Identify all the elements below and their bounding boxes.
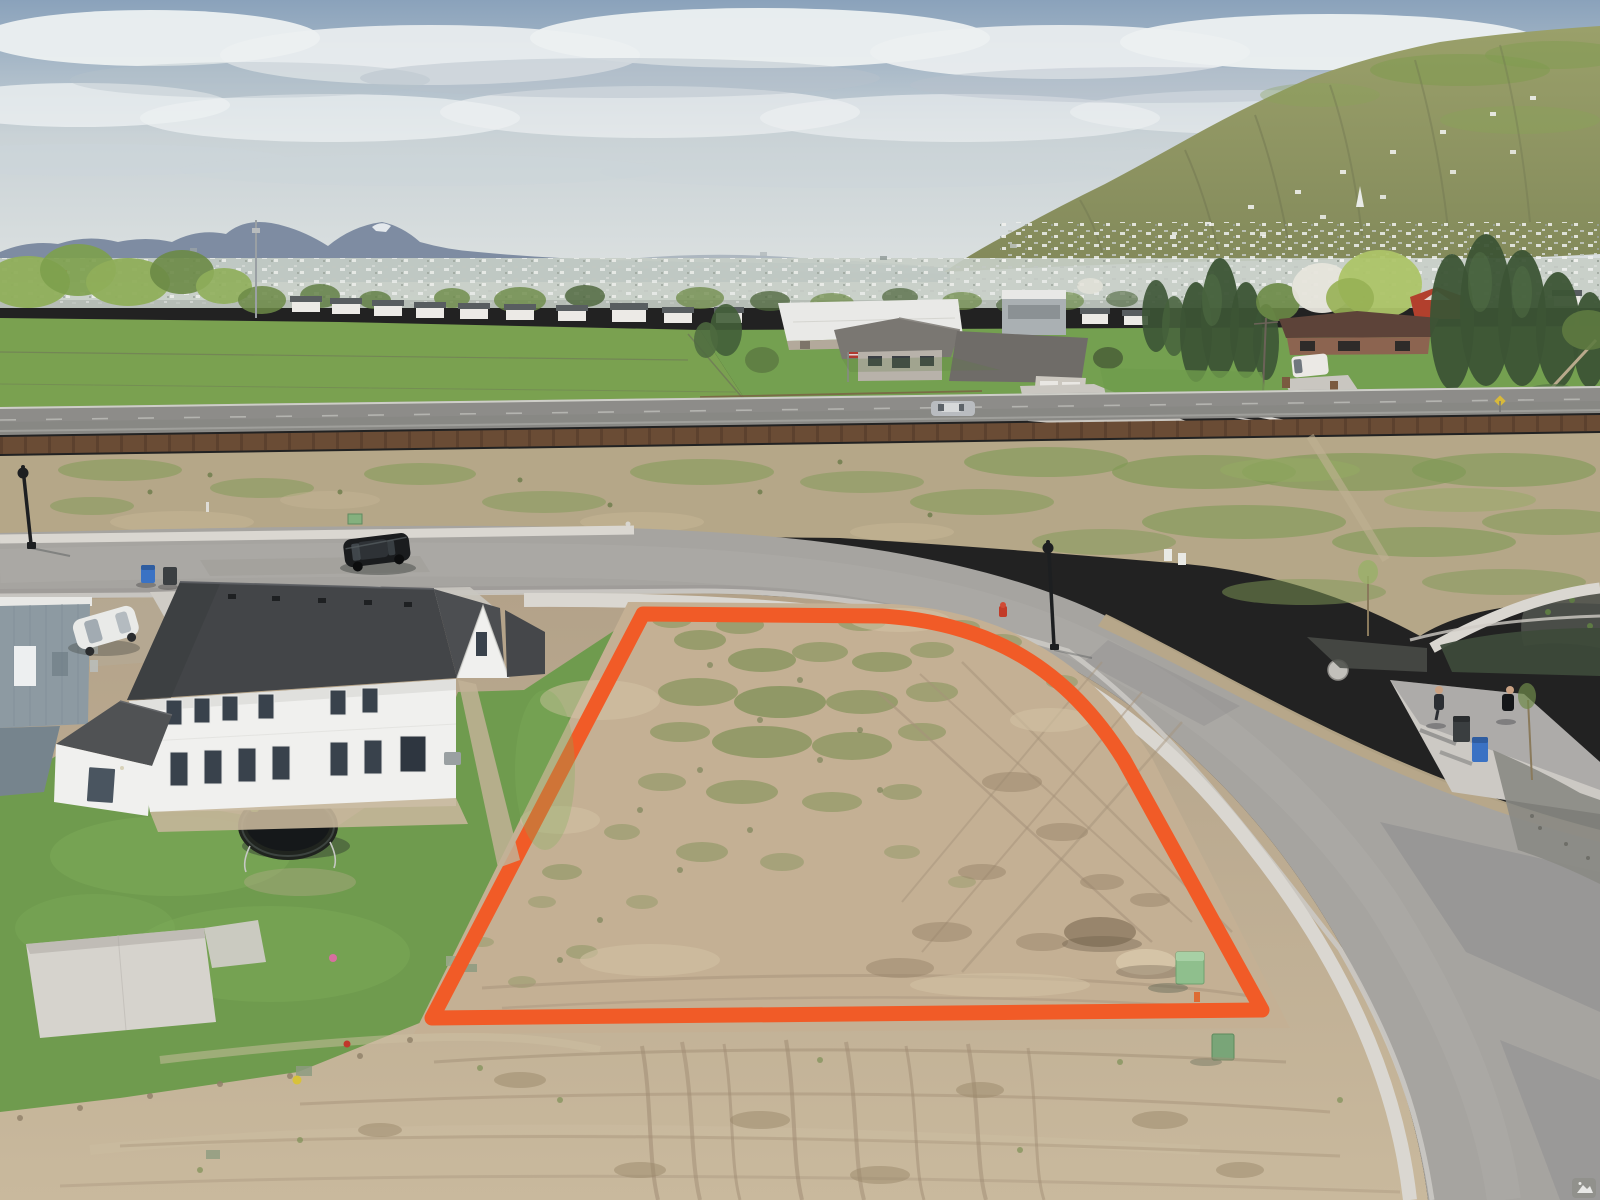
- aerial-photo-stage: Aerial drone photo of a vacant dirt lot …: [0, 0, 1600, 1200]
- aerial-photo: Aerial drone photo of a vacant dirt lot …: [0, 0, 1600, 1200]
- watermark-icon: [1572, 1178, 1596, 1198]
